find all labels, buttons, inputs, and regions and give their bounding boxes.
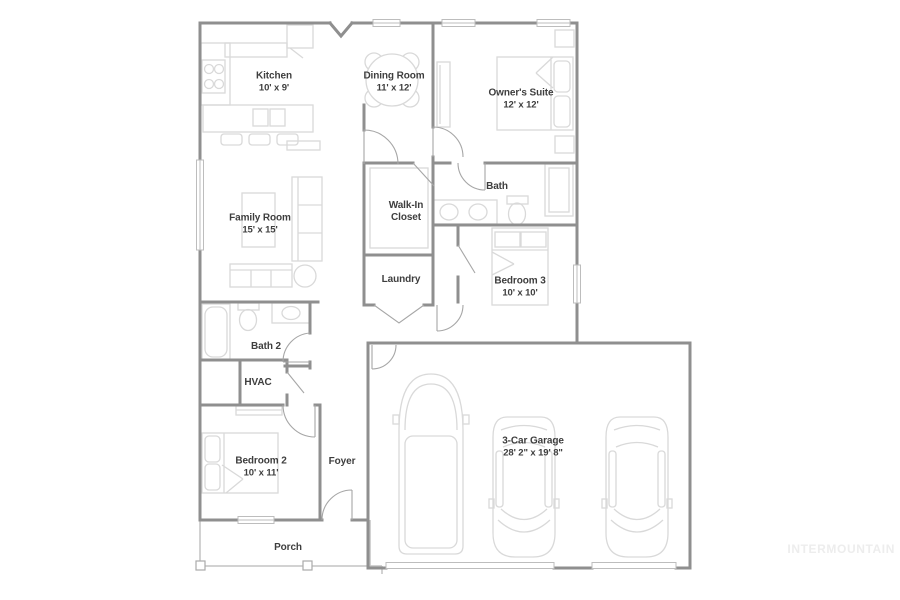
garage-vehicles [393, 374, 672, 557]
bath2-fixtures [202, 303, 310, 360]
sofa-icon [230, 264, 292, 287]
closet-shelf [370, 168, 428, 248]
truck-icon [393, 374, 469, 554]
dining-furniture [365, 53, 450, 127]
bed-icon [497, 57, 573, 130]
car-icon [602, 417, 672, 557]
watermark: INTERMOUNTAIN [787, 542, 895, 556]
porch-outline [196, 520, 382, 574]
bed-icon [202, 433, 278, 493]
nightstand-icon [555, 136, 574, 153]
owners-suite-furniture [497, 30, 574, 153]
sink-icon [253, 109, 268, 126]
bedroom2-furniture [202, 406, 282, 493]
porch-post [196, 561, 205, 570]
tub-icon [202, 304, 230, 360]
garage-door [592, 563, 676, 569]
sink-icon [270, 109, 285, 126]
floor-plan: Kitchen 10' x 9' Dining Room 11' x 12' O… [0, 0, 900, 600]
garage-door [386, 563, 554, 569]
dining-table-icon [366, 54, 418, 106]
porch-post [303, 561, 312, 570]
door-swings [283, 127, 485, 520]
sofa-icon [292, 177, 322, 261]
car-icon [489, 417, 559, 557]
floor-plan-svg [0, 0, 900, 600]
nightstand-icon [555, 30, 574, 47]
kitchen-fixtures [201, 25, 313, 145]
bedroom3-furniture [492, 228, 548, 305]
family-room-furniture [230, 141, 322, 287]
